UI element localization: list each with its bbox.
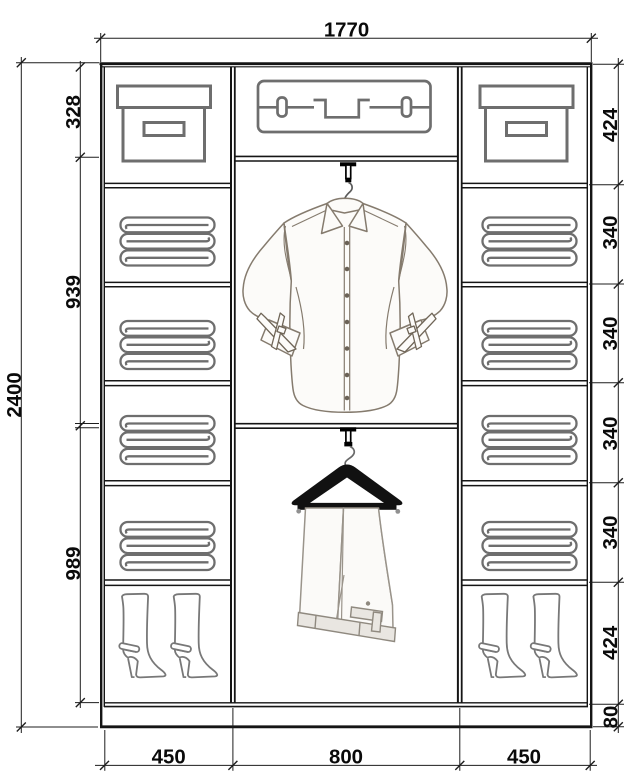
svg-text:2400: 2400 [4, 372, 26, 417]
svg-text:450: 450 [507, 747, 541, 769]
svg-text:424: 424 [600, 625, 622, 660]
svg-text:328: 328 [63, 95, 85, 129]
svg-text:1770: 1770 [324, 20, 369, 42]
svg-text:80: 80 [601, 706, 623, 729]
svg-text:340: 340 [600, 515, 622, 549]
svg-text:450: 450 [152, 747, 186, 769]
svg-text:939: 939 [63, 275, 85, 309]
svg-text:340: 340 [600, 416, 622, 450]
svg-text:424: 424 [600, 107, 622, 142]
svg-text:800: 800 [329, 747, 363, 769]
svg-text:340: 340 [600, 316, 622, 350]
svg-text:989: 989 [63, 546, 85, 580]
svg-text:340: 340 [600, 215, 622, 249]
